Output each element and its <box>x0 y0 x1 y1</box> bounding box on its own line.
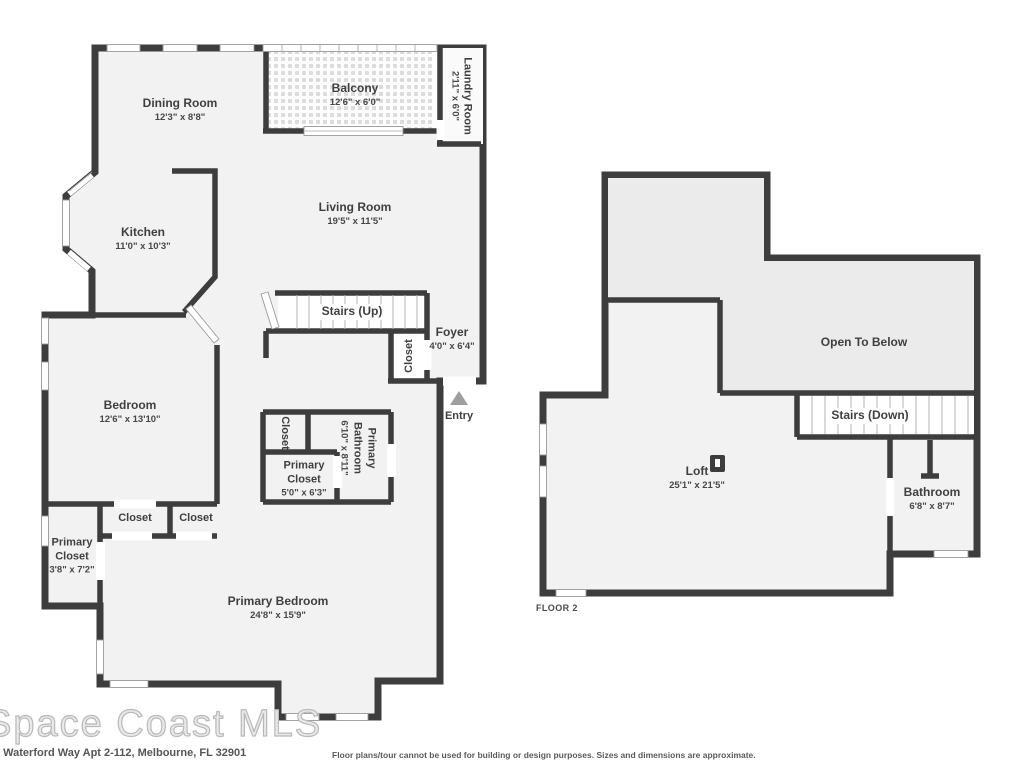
room-dim: 3'8" x 7'2" <box>42 564 102 576</box>
room-name: Primary Bedroom <box>228 594 329 610</box>
room-name: Bathroom <box>904 485 961 501</box>
room-name: Living Room <box>319 200 392 216</box>
floorplan-page: Dining Room 12'3" x 8'8" Balcony 12'6" x… <box>0 0 1024 768</box>
floor2-tag: FLOOR 2 <box>536 603 578 613</box>
room-name: Stairs (Up) <box>322 304 383 320</box>
room-dim: 12'6" x 6'0" <box>330 97 381 109</box>
floor2-plan <box>540 175 978 597</box>
room-dim: 24'8" x 15'9" <box>228 610 329 622</box>
room-dim: 5'0" x 6'3" <box>274 487 334 499</box>
room-label-loft: Loft 25'1" x 21'5" <box>669 464 725 492</box>
property-address: e Waterford Way Apt 2-112, Melbourne, FL… <box>0 747 246 759</box>
room-label-living: Living Room 19'5" x 11'5" <box>319 200 392 228</box>
room-name: Laundry Room <box>460 57 474 135</box>
open-to-below-label: Open To Below <box>821 335 907 351</box>
room-dim: 6'10" x 8'11" <box>338 411 350 485</box>
entry-label: Entry <box>445 409 473 423</box>
room-label-kitchen: Kitchen 11'0" x 10'3" <box>115 225 170 253</box>
room-label-laundry: Laundry Room 2'11" x 6'0" <box>448 57 475 135</box>
room-label-primary-closet-small: Primary Closet 5'0" x 6'3" <box>274 459 334 500</box>
room-name: Bedroom <box>99 398 160 414</box>
room-dim: 25'1" x 21'5" <box>669 480 725 492</box>
room-label-closet-a: Closet <box>118 511 152 525</box>
room-name: Closet <box>278 416 292 450</box>
room-name: Stairs (Down) <box>831 408 908 424</box>
room-name: Balcony <box>330 81 381 97</box>
mls-watermark: Space Coast MLS <box>0 703 322 746</box>
room-label-bedroom: Bedroom 12'6" x 13'10" <box>99 398 160 426</box>
room-name: Closet <box>402 339 416 373</box>
room-name: Entry <box>445 409 473 423</box>
room-name: Primary Bathroom <box>350 411 379 485</box>
room-name: Closet <box>179 511 213 525</box>
room-dim: 12'3" x 8'8" <box>143 112 218 124</box>
room-name: Open To Below <box>821 335 907 351</box>
room-name: Kitchen <box>115 225 170 241</box>
room-dim: 12'6" x 13'10" <box>99 414 160 426</box>
stairs-down-label: Stairs (Down) <box>826 408 913 424</box>
stairs-up-label: Stairs (Up) <box>317 304 388 320</box>
room-dim: 19'5" x 11'5" <box>319 216 392 228</box>
room-label-primary-closet-large: Primary Closet 3'8" x 7'2" <box>42 536 102 577</box>
room-name: Dining Room <box>143 96 218 112</box>
room-label-foyer: Foyer 4'0" x 6'4" <box>429 325 474 353</box>
room-label-closet-b: Closet <box>179 511 213 525</box>
room-dim: 2'11" x 6'0" <box>448 57 460 135</box>
room-dim: 6'8" x 8'7" <box>904 501 961 513</box>
room-name: Foyer <box>429 325 474 341</box>
room-name: Loft <box>669 464 725 480</box>
room-name: Primary Closet <box>274 459 334 488</box>
room-dim: 11'0" x 10'3" <box>115 241 170 253</box>
room-label-primary-bedroom: Primary Bedroom 24'8" x 15'9" <box>228 594 329 622</box>
room-label-closet-foyer: Closet <box>402 339 416 373</box>
room-label-dining: Dining Room 12'3" x 8'8" <box>143 96 218 124</box>
room-label-balcony: Balcony 12'6" x 6'0" <box>330 81 381 109</box>
room-dim: 4'0" x 6'4" <box>429 341 474 353</box>
room-label-primary-bathroom: Primary Bathroom 6'10" x 8'11" <box>338 411 379 485</box>
room-name: Closet <box>118 511 152 525</box>
room-label-closet-hall: Closet <box>278 416 292 450</box>
floor2-door-openings <box>886 478 894 516</box>
disclaimer-text: Floor plans/tour cannot be used for buil… <box>332 750 756 760</box>
room-name: Primary Closet <box>42 536 102 565</box>
entry-arrow-icon <box>450 391 468 405</box>
room-label-bathroom: Bathroom 6'8" x 8'7" <box>904 485 961 513</box>
